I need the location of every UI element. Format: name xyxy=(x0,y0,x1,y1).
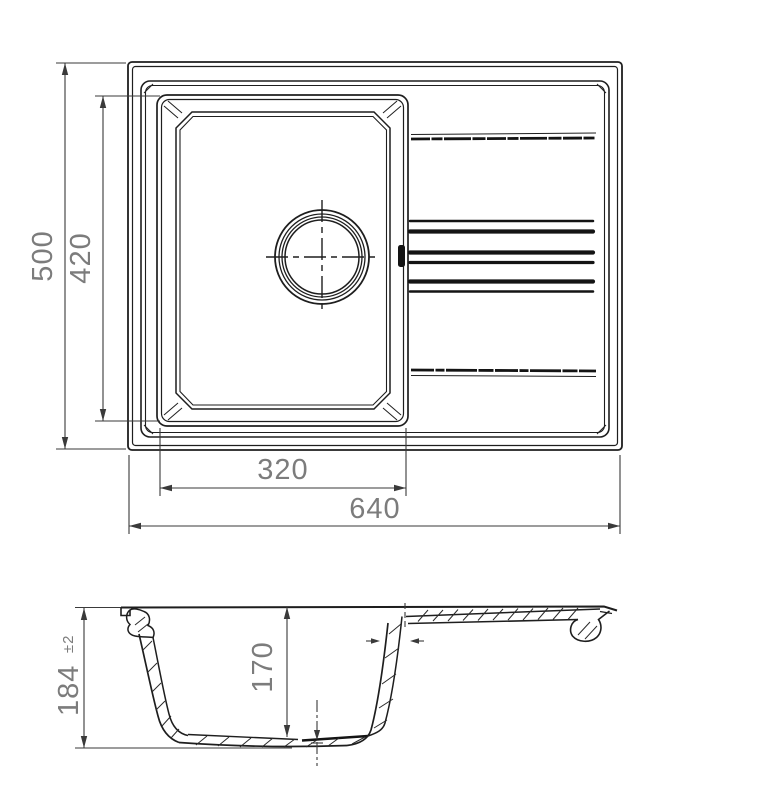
bowl-bottom-edge xyxy=(176,112,390,409)
side-view: 184 ±2 170 xyxy=(53,603,617,766)
dimension-label-overall-height: 184 ±2 xyxy=(53,635,85,716)
dimension-bowl-inner-depth: 170 xyxy=(247,607,290,737)
drainboard-section xyxy=(406,609,610,641)
left-wall-outer xyxy=(139,634,179,743)
sink-technical-drawing: 500 420 320 640 xyxy=(0,0,764,800)
groove-top-highlight xyxy=(411,133,596,135)
dimension-label-overall-depth: 500 xyxy=(27,230,59,281)
dimension-label-tolerance: ±2 xyxy=(60,635,77,654)
section-hatching xyxy=(135,608,597,747)
bowl-floor xyxy=(179,735,368,747)
dimension-label-bowl-inner-depth: 170 xyxy=(247,641,279,692)
groove-left-notch xyxy=(398,245,405,267)
dimension-label-bowl-depth: 420 xyxy=(65,232,97,283)
drawing-canvas: 500 420 320 640 xyxy=(0,0,764,800)
outer-edge xyxy=(128,62,622,450)
rim-top-line xyxy=(121,607,617,611)
outer-edge-line xyxy=(128,62,622,450)
drain-centerline-section xyxy=(311,700,323,766)
drainboard-surface-line xyxy=(406,609,600,617)
dimension-overall-width: 640 xyxy=(129,455,620,534)
rim-corner-facets xyxy=(144,84,606,434)
floor-inner-line xyxy=(188,735,298,740)
left-bowl-wall xyxy=(139,634,188,743)
right-bowl-wall xyxy=(347,603,405,746)
bowl-bottom-inner-edge xyxy=(180,117,387,406)
drainboard-grooves xyxy=(398,133,596,377)
dimension-bowl-width: 320 xyxy=(160,428,406,496)
wall-thickness-ticks xyxy=(366,638,424,644)
groove-top xyxy=(411,138,596,139)
rim-edge-line xyxy=(141,81,609,437)
groove-bottom xyxy=(411,370,596,371)
drain xyxy=(266,200,378,314)
left-wall-inner xyxy=(153,638,188,736)
dimension-label-overall-width: 640 xyxy=(349,493,400,525)
dimension-label-bowl-width: 320 xyxy=(257,454,308,486)
dimension-label-184: 184 xyxy=(53,665,85,716)
drainboard-end-hook xyxy=(571,611,610,641)
rim-edge xyxy=(141,81,609,437)
groove-bars xyxy=(410,221,593,292)
outer-edge-inner-line xyxy=(133,67,618,446)
floor-far-edge xyxy=(302,736,368,741)
top-view: 500 420 320 640 xyxy=(27,62,622,534)
groove-bottom-shadow xyxy=(411,376,596,377)
section-top-edge xyxy=(75,607,617,614)
